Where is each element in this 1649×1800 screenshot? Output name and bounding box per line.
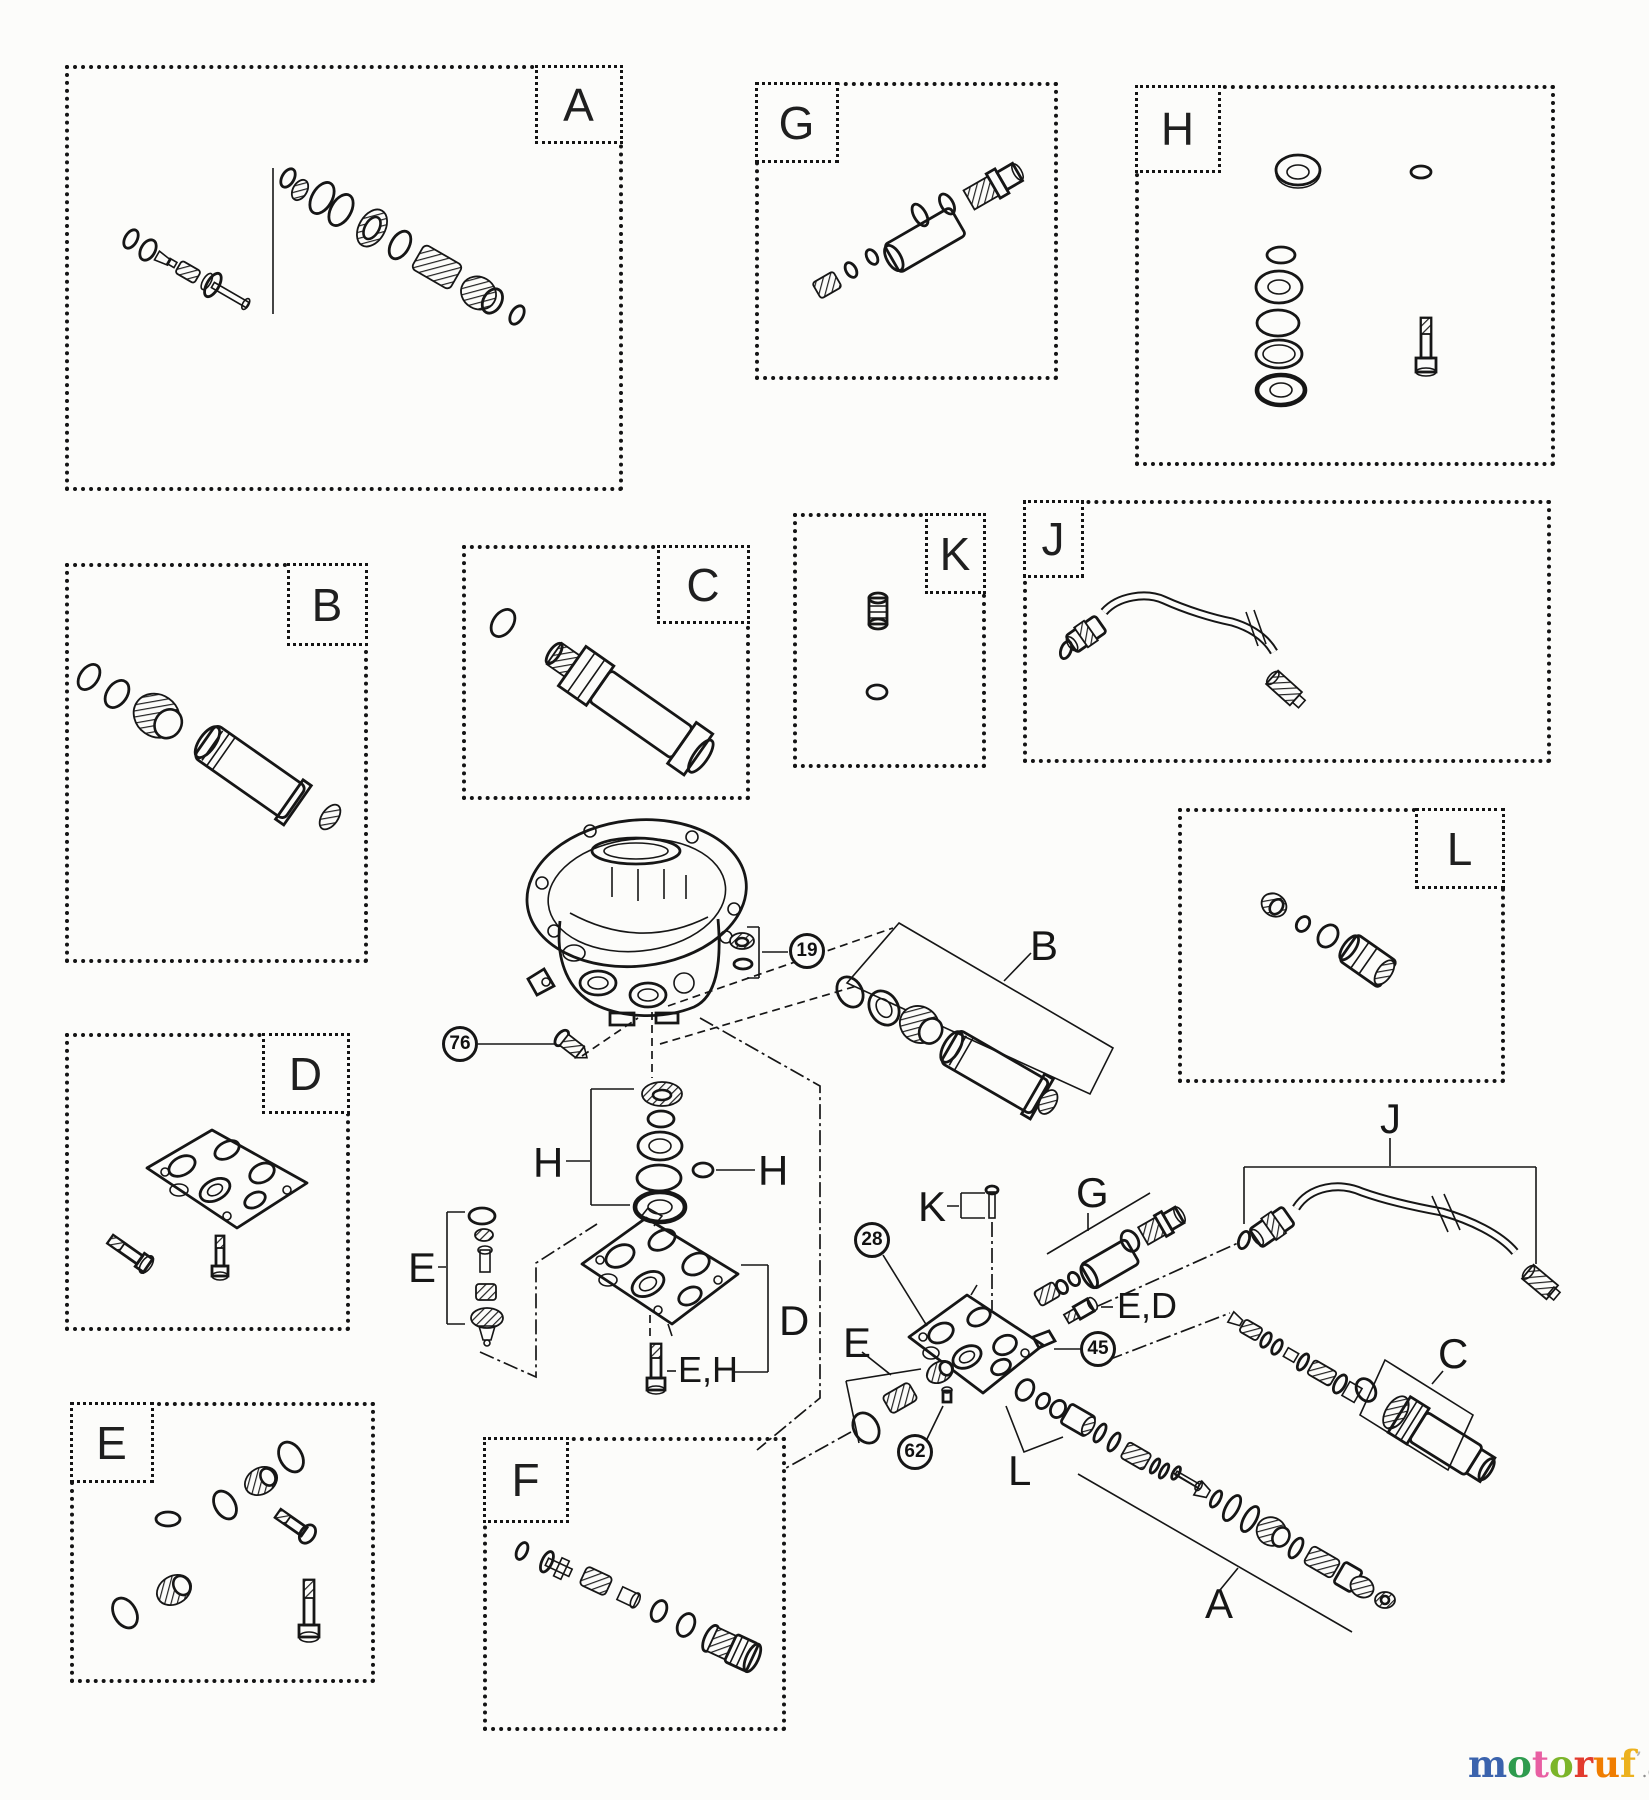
manifold-center: [582, 1208, 738, 1336]
box-e-valve-parts: [107, 1438, 319, 1642]
valve-stack-e: [469, 1208, 503, 1346]
box-k-fitting-parts: [867, 593, 887, 699]
outlet-tube-c-main: [1352, 1375, 1502, 1489]
logo-letter: o: [1507, 1742, 1532, 1786]
callout-62: 62: [897, 1434, 933, 1470]
screw-76: [552, 1028, 592, 1065]
logo-letter: o: [1549, 1742, 1574, 1786]
callout-45: 45: [1080, 1331, 1116, 1367]
box-b-tube-kit-parts: [74, 660, 345, 833]
ref-label-b: B: [1030, 925, 1058, 967]
hose-j-main: [1236, 1187, 1562, 1303]
bolt-eh: [647, 1344, 665, 1394]
box-f-thermal-valve-parts: [514, 1541, 764, 1674]
ref-label-d: D: [779, 1300, 809, 1342]
valve-kit-a-main: [1092, 1422, 1395, 1608]
motoruf-watermark-link[interactable]: motoruf’.de: [1468, 1746, 1649, 1783]
phantom-lines: [480, 928, 1238, 1468]
box-g-unloader-parts: [812, 158, 1028, 299]
callout-28: 28: [854, 1222, 890, 1258]
box-c-outlet-tube-parts: [486, 605, 721, 781]
logo-letter: u: [1593, 1742, 1620, 1786]
pump-crankcase: [520, 809, 754, 1025]
box-a-valve-kit-parts: [121, 166, 527, 326]
ref-label-j: J: [1380, 1098, 1401, 1140]
ref-label-ed: E,D: [1117, 1288, 1177, 1324]
nut-and-oring-19: [730, 933, 754, 969]
logo-letter: m: [1468, 1742, 1507, 1786]
chain-to-c: [1228, 1312, 1362, 1403]
ref-label-a: A: [1205, 1583, 1233, 1625]
valve-e-lower: [848, 1356, 958, 1448]
coupler-l-main: [1013, 1376, 1099, 1438]
ref-label-k: K: [918, 1186, 946, 1228]
bolt: [1416, 318, 1436, 376]
ref-label-g: G: [1076, 1172, 1109, 1214]
ref-label-h-right: H: [758, 1150, 788, 1192]
ref-label-h-left: H: [533, 1142, 563, 1184]
logo-letter: f: [1620, 1742, 1636, 1786]
ref-label-e-left: E: [408, 1247, 436, 1289]
logo-letter: r: [1574, 1742, 1594, 1786]
parts-diagram-page: A B C D E F G H J K L: [0, 0, 1649, 1800]
box-l-coupler-parts: [1257, 889, 1399, 990]
valve-ed: [1063, 1296, 1099, 1325]
tube-kit-b-main: [832, 972, 1062, 1119]
pin-k: [986, 1186, 998, 1218]
ref-label-l: L: [1008, 1450, 1031, 1492]
callout-76: 76: [442, 1026, 478, 1062]
exploded-view-artwork: [0, 0, 1649, 1800]
logo-suffix: .de: [1642, 1760, 1649, 1782]
ref-label-e-lower: E: [843, 1322, 871, 1364]
box-j-hose-parts: [1058, 596, 1308, 711]
box-h-seal-kit-parts: [1256, 155, 1436, 405]
ref-label-eh: E,H: [678, 1352, 738, 1388]
oring-h-right: [693, 1163, 713, 1177]
box-d-manifold-parts: [105, 1130, 307, 1280]
ref-label-c: C: [1438, 1333, 1468, 1375]
seal-stack-h: [635, 1082, 685, 1222]
logo-letter: t: [1532, 1742, 1549, 1786]
screw-62: [942, 1387, 952, 1402]
callout-19: 19: [789, 933, 825, 969]
